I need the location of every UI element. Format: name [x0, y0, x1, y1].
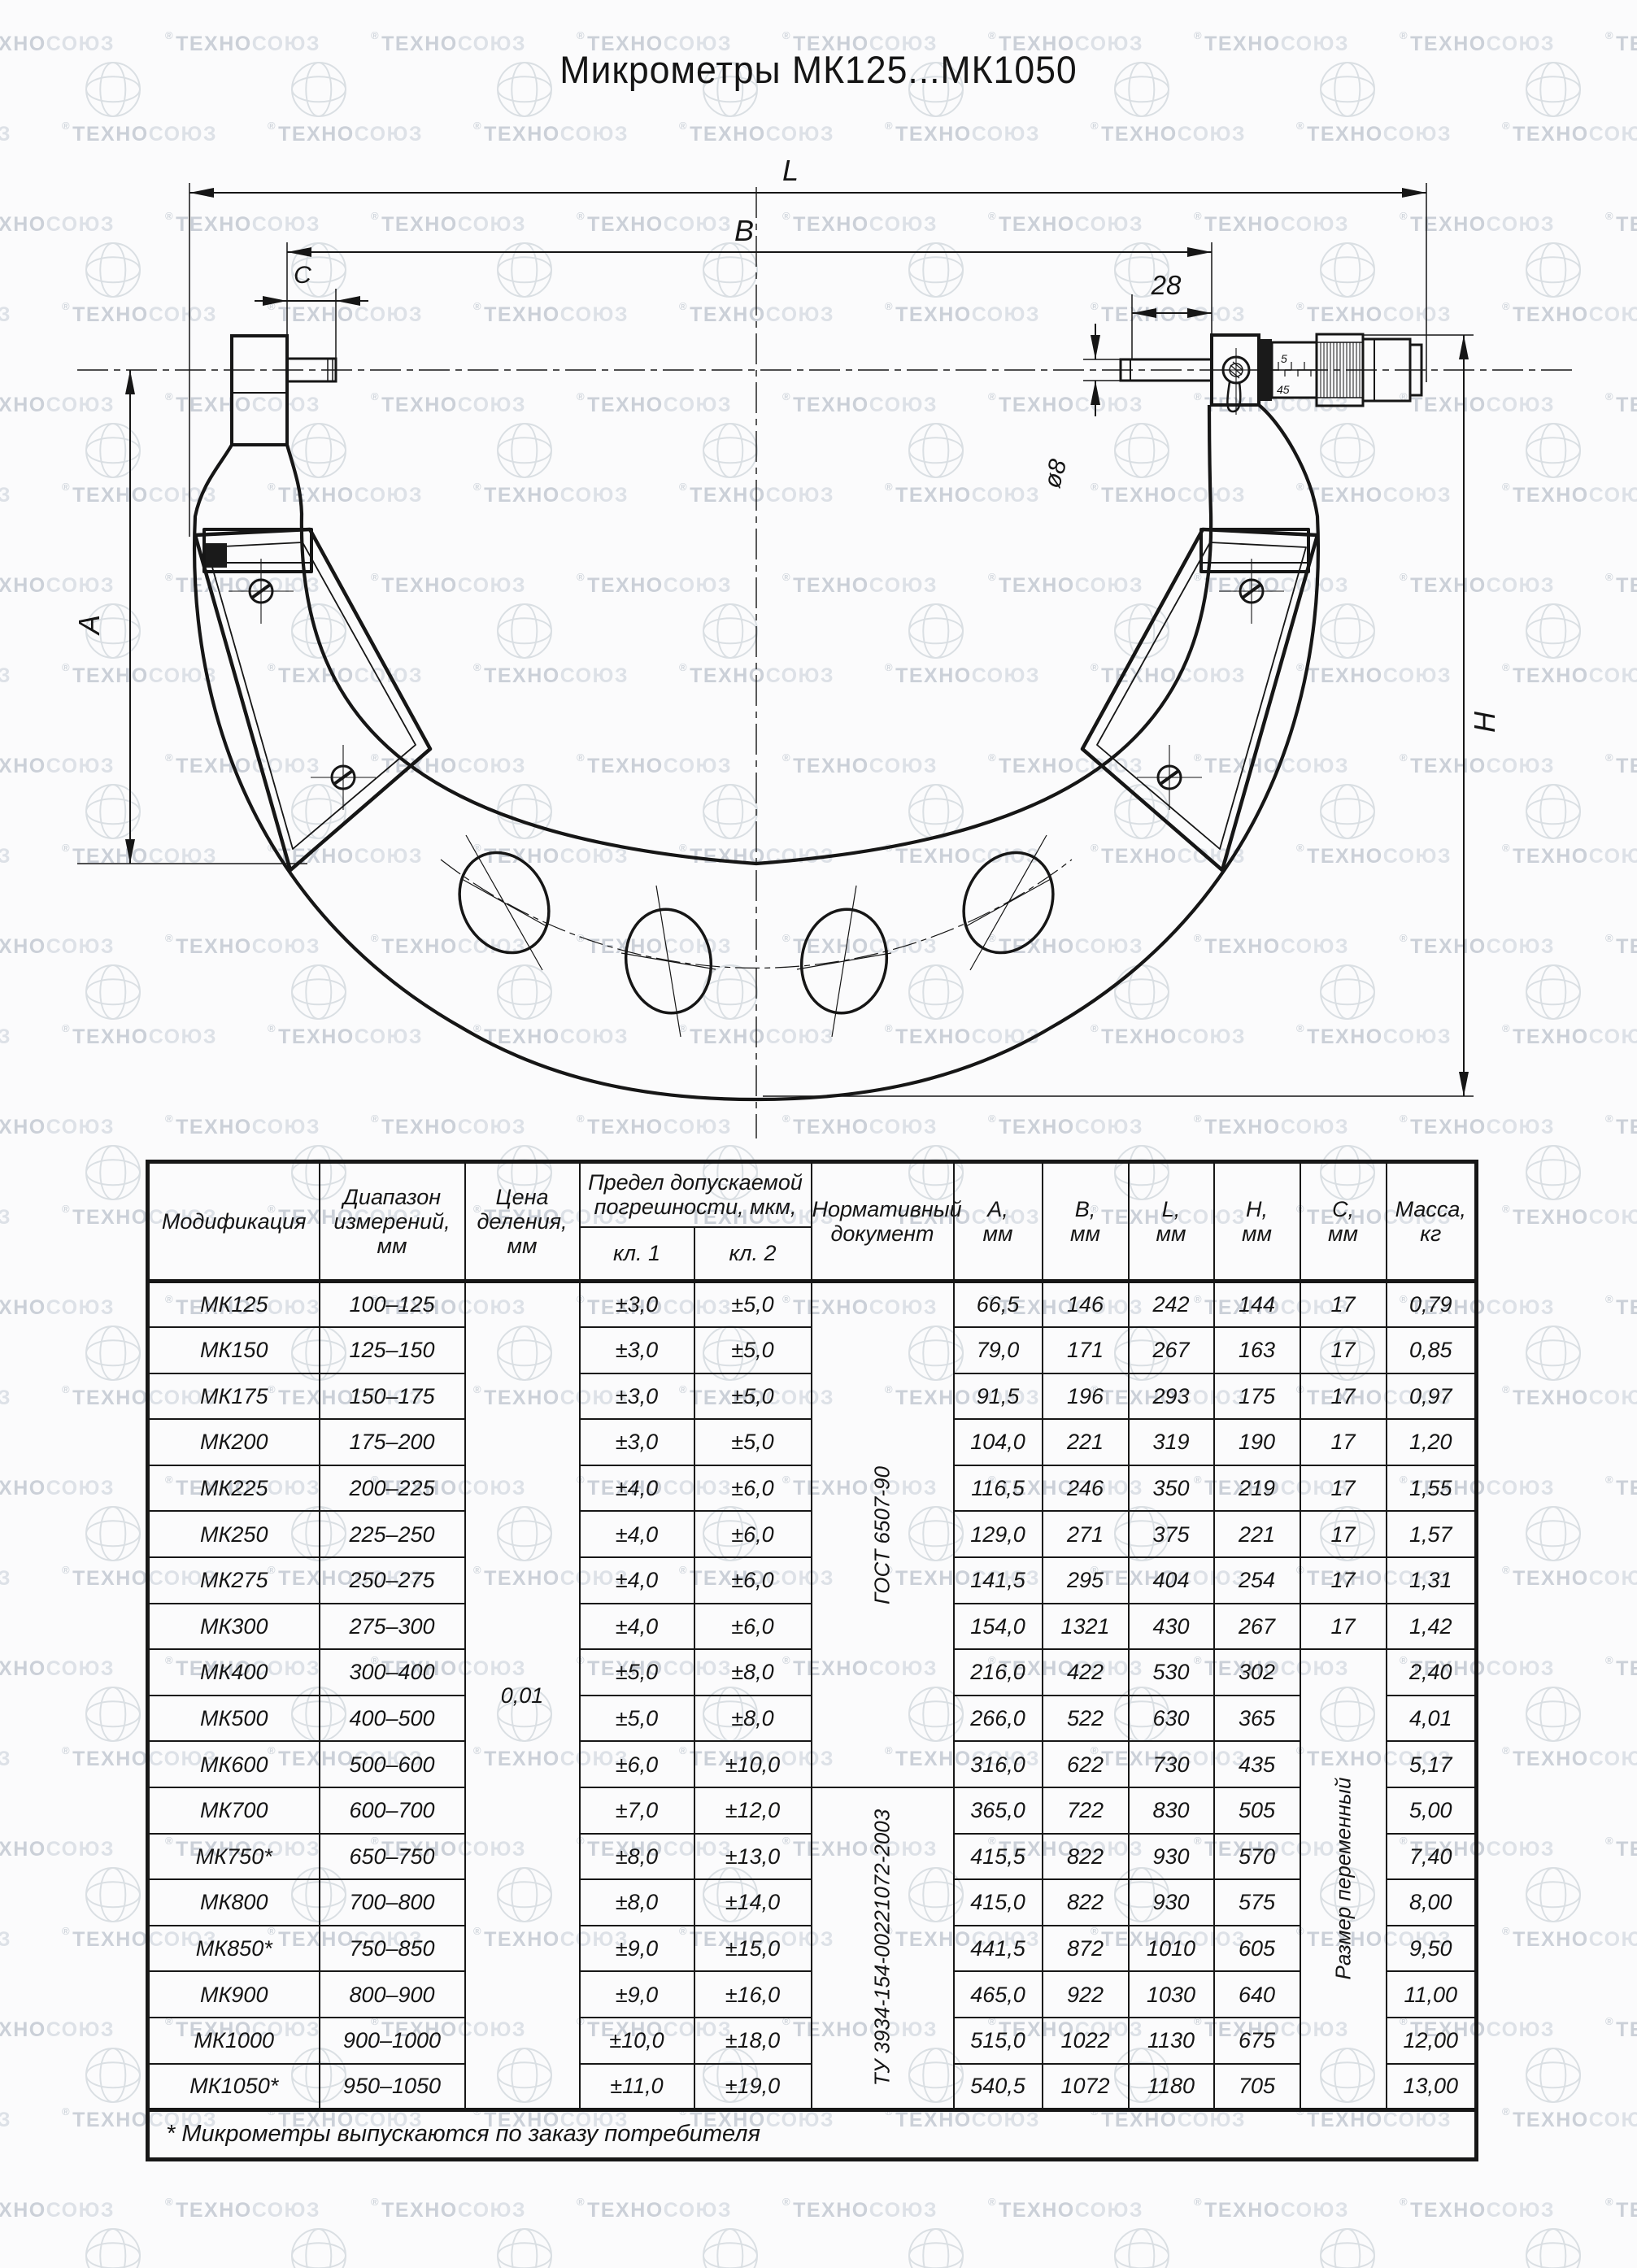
registered-mark: ® [1605, 2196, 1614, 2208]
cell-kl1: ±3,0 [580, 1282, 694, 1328]
cell-mass: 1,20 [1387, 1419, 1477, 1465]
cell-mass: 2,40 [1387, 1649, 1477, 1696]
brand-bold: ТЕХНО [0, 2199, 46, 2222]
cell-model: МК600 [148, 1741, 320, 1787]
drawing-sheet: ®ТЕХНОСОЮЗ®ТЕХНОСОЮЗ®ТЕХНОСОЮЗ®ТЕХНОСОЮЗ… [0, 0, 1637, 2268]
cell-l: 630 [1129, 1696, 1214, 1742]
cell-b: 622 [1043, 1741, 1129, 1787]
cell-l: 430 [1129, 1604, 1214, 1650]
registered-mark: ® [988, 2196, 997, 2208]
registered-mark: ® [782, 29, 791, 41]
center-lines [77, 187, 1574, 1138]
dim-label-C: C [294, 262, 311, 289]
cell-kl2: ±16,0 [694, 1971, 812, 2018]
watermark-tile: ®ТЕХНОСОЮЗ [1605, 1835, 1637, 1861]
registered-mark: ® [165, 2196, 174, 2208]
brand-light: СОЮЗ [0, 1386, 11, 1409]
cell-l: 930 [1129, 1834, 1214, 1880]
cell-h: 435 [1214, 1741, 1300, 1787]
cell-range: 275–300 [320, 1604, 465, 1650]
brand-bold: ТЕХНО [999, 2199, 1075, 2222]
registered-mark: ® [577, 2196, 586, 2208]
watermark-tile: ®ТЕХНОСОЮЗ [0, 2105, 11, 2132]
footnote-row: * Микрометры выпускаются по заказу потре… [148, 2109, 1477, 2159]
registered-mark: ® [1502, 1744, 1511, 1757]
cell-kl1: ±11,0 [580, 2064, 694, 2110]
brand-bold: ТЕХНО [1616, 1296, 1637, 1319]
cell-kl1: ±9,0 [580, 1926, 694, 1972]
vertical-text: ТУ 3934-154-00221072-2003 [870, 1809, 894, 2086]
cell-h: 675 [1214, 2018, 1300, 2064]
brand-bold: ТЕХНО [1616, 2199, 1637, 2222]
cell-l: 293 [1129, 1373, 1214, 1420]
watermark-tile: ®ТЕХНОСОЮЗ [1502, 1564, 1637, 1591]
cell-model: МК800 [148, 1879, 320, 1926]
cell-mass: 8,00 [1387, 1879, 1477, 1926]
cell-l: 1130 [1129, 2018, 1214, 2064]
cell-range: 800–900 [320, 1971, 465, 2018]
cell-b: 822 [1043, 1834, 1129, 1880]
brand-light: СОЮЗ [1589, 1386, 1637, 1409]
cell-range: 400–500 [320, 1696, 465, 1742]
globe-watermark-icon [497, 2228, 552, 2268]
registered-mark: ® [62, 1383, 71, 1395]
registered-mark: ® [371, 29, 380, 41]
brand-bold: ТЕХНО [0, 1657, 46, 1680]
cell-norm-doc-gost: ГОСТ 6507-90 [812, 1282, 954, 1788]
dimension-lines [77, 183, 1474, 1096]
registered-mark: ® [1605, 2015, 1614, 2027]
cell-kl2: ±5,0 [694, 1419, 812, 1465]
cell-kl1: ±8,0 [580, 1834, 694, 1880]
watermark-tile: ®ТЕХНОСОЮЗ [1502, 1383, 1637, 1410]
sleeve-mark-45: 45 [1277, 383, 1290, 396]
header-row: МодификацияДиапазонизмерений,ммЦенаделен… [148, 1162, 1477, 1227]
cell-kl1: ±7,0 [580, 1787, 694, 1834]
cell-kl1: ±9,0 [580, 1971, 694, 2018]
cell-b: 822 [1043, 1879, 1129, 1926]
cell-h: 254 [1214, 1557, 1300, 1604]
brand-light: СОЮЗ [869, 2199, 938, 2222]
cell-l: 375 [1129, 1511, 1214, 1557]
cell-mass: 7,40 [1387, 1834, 1477, 1880]
cell-kl1: ±3,0 [580, 1327, 694, 1373]
registered-mark: ® [1605, 1835, 1614, 1847]
cell-range: 175–200 [320, 1419, 465, 1465]
cell-kl2: ±5,0 [694, 1373, 812, 1420]
registered-mark: ® [1605, 1654, 1614, 1666]
cell-model: МК225 [148, 1465, 320, 1512]
col-header-modification: Модификация [148, 1162, 320, 1282]
brand-light: СОЮЗ [0, 1567, 11, 1590]
watermark-tile: ®ТЕХНОСОЮЗ [1605, 1654, 1637, 1681]
registered-mark: ® [782, 2196, 791, 2208]
cell-a: 91,5 [954, 1373, 1043, 1420]
brand-bold: ТЕХНО [0, 2018, 46, 2041]
brand-bold: ТЕХНО [1513, 1748, 1589, 1770]
cell-kl2: ±5,0 [694, 1282, 812, 1328]
cell-model: МК1000 [148, 2018, 320, 2064]
col-header-range: Диапазонизмерений,мм [320, 1162, 465, 1282]
cell-range: 250–275 [320, 1557, 465, 1604]
registered-mark: ® [1502, 1564, 1511, 1576]
cell-kl1: ±4,0 [580, 1557, 694, 1604]
registered-mark: ® [577, 29, 586, 41]
cell-l: 404 [1129, 1557, 1214, 1604]
cell-a: 415,0 [954, 1879, 1043, 1926]
brand-bold: ТЕХНО [587, 2199, 664, 2222]
brand-bold: ТЕХНО [72, 1928, 149, 1951]
cell-a: 216,0 [954, 1649, 1043, 1696]
cell-c: 17 [1300, 1511, 1387, 1557]
cell-b: 271 [1043, 1511, 1129, 1557]
watermark-tile: ®ТЕХНОСОЮЗ [1502, 1744, 1637, 1771]
registered-mark: ® [62, 1925, 71, 1937]
cell-b: 522 [1043, 1696, 1129, 1742]
cell-l: 930 [1129, 1879, 1214, 1926]
cell-h: 144 [1214, 1282, 1300, 1328]
cell-b: 1072 [1043, 2064, 1129, 2110]
brand-bold: ТЕХНО [0, 1477, 46, 1500]
footnote: * Микрометры выпускаются по заказу потре… [148, 2109, 1477, 2159]
watermark-tile: ®ТЕХНОСОЮЗ [988, 2196, 1143, 2222]
cell-model: МК275 [148, 1557, 320, 1604]
watermark-tile: ®ТЕХНОСОЮЗ [1502, 1925, 1637, 1952]
cell-l: 242 [1129, 1282, 1214, 1328]
cell-l: 1030 [1129, 1971, 1214, 2018]
watermark-tile: ®ТЕХНОСОЮЗ [0, 1925, 11, 1952]
cell-kl1: ±8,0 [580, 1879, 694, 1926]
cell-model: МК900 [148, 1971, 320, 2018]
brand-light: СОЮЗ [1487, 1657, 1555, 1680]
cell-model: МК125 [148, 1282, 320, 1328]
registered-mark: ® [371, 2196, 380, 2208]
cell-b: 1022 [1043, 2018, 1129, 2064]
cell-a: 141,5 [954, 1557, 1043, 1604]
dim-label-d8: ø8 [1038, 456, 1072, 491]
cell-c: 17 [1300, 1282, 1387, 1328]
watermark-tile: ®ТЕХНОСОЮЗ [0, 1835, 115, 1861]
brand-light: СОЮЗ [0, 2109, 11, 2131]
dim-label-L: L [782, 154, 799, 187]
cell-h: 175 [1214, 1373, 1300, 1420]
cell-range: 200–225 [320, 1465, 465, 1512]
watermark-tile: ®ТЕХНОСОЮЗ [1400, 2196, 1555, 2222]
col-header-l: L,мм [1129, 1162, 1214, 1282]
cell-h: 267 [1214, 1604, 1300, 1650]
globe-watermark-icon [85, 1867, 141, 1922]
cell-kl1: ±3,0 [580, 1419, 694, 1465]
cell-kl2: ±14,0 [694, 1879, 812, 1926]
cell-model: МК400 [148, 1649, 320, 1696]
spec-table: МодификацияДиапазонизмерений,ммЦенаделен… [146, 1160, 1478, 2161]
anvil-assembly [232, 336, 336, 445]
globe-watermark-icon [908, 2228, 964, 2268]
brand-bold: ТЕХНО [72, 2109, 149, 2131]
cell-a: 266,0 [954, 1696, 1043, 1742]
cell-norm-doc-tu: ТУ 3934-154-00221072-2003 [812, 1787, 954, 2109]
col-header-norm: Нормативныйдокумент [812, 1162, 954, 1282]
brand-light: СОЮЗ [1589, 2109, 1637, 2131]
watermark-tile: ®ТЕХНОСОЮЗ [165, 2196, 320, 2222]
cell-h: 570 [1214, 1834, 1300, 1880]
registered-mark: ® [1194, 2196, 1203, 2208]
registered-mark: ® [1605, 1474, 1614, 1486]
cell-model: МК200 [148, 1419, 320, 1465]
globe-watermark-icon [85, 2228, 141, 2268]
brand-light: СОЮЗ [1487, 2018, 1555, 2041]
globe-watermark-icon [1320, 2228, 1375, 2268]
registered-mark: ® [988, 29, 997, 41]
cell-division-merged: 0,01 [465, 1282, 580, 2110]
cell-range: 225–250 [320, 1511, 465, 1557]
cell-range: 500–600 [320, 1741, 465, 1787]
col-header-b: В,мм [1043, 1162, 1129, 1282]
cell-a: 79,0 [954, 1327, 1043, 1373]
watermark-tile: ®ТЕХНОСОЮЗ [577, 2196, 732, 2222]
cell-a: 441,5 [954, 1926, 1043, 1972]
watermark-tile: ®ТЕХНОСОЮЗ [1605, 2196, 1637, 2222]
cell-kl2: ±13,0 [694, 1834, 812, 1880]
brand-bold: ТЕХНО [1204, 2199, 1281, 2222]
watermark-tile: ®ТЕХНОСОЮЗ [0, 2196, 115, 2222]
brand-bold: ТЕХНО [381, 2199, 458, 2222]
registered-mark: ® [1502, 1203, 1511, 1215]
cell-a: 129,0 [954, 1511, 1043, 1557]
brand-bold: ТЕХНО [793, 2199, 869, 2222]
brand-light: СОЮЗ [46, 2018, 115, 2041]
brand-light: СОЮЗ [1589, 1748, 1637, 1770]
dim-label-28: 28 [1151, 270, 1182, 300]
brand-light: СОЮЗ [1487, 2199, 1555, 2222]
cell-l: 730 [1129, 1741, 1214, 1787]
globe-watermark-icon [703, 2228, 758, 2268]
cell-mass: 9,50 [1387, 1926, 1477, 1972]
cell-range: 700–800 [320, 1879, 465, 1926]
cell-a: 66,5 [954, 1282, 1043, 1328]
cell-mass: 12,00 [1387, 2018, 1477, 2064]
cell-b: 922 [1043, 1971, 1129, 2018]
brand-light: СОЮЗ [1589, 1206, 1637, 1229]
cell-a: 116,5 [954, 1465, 1043, 1512]
cell-range: 750–850 [320, 1926, 465, 1972]
cell-h: 640 [1214, 1971, 1300, 2018]
brand-light: СОЮЗ [1487, 1296, 1555, 1319]
brand-bold: ТЕХНО [1513, 1567, 1589, 1590]
watermark-tile: ®ТЕХНОСОЮЗ [0, 1744, 11, 1771]
cell-a: 365,0 [954, 1787, 1043, 1834]
cell-l: 830 [1129, 1787, 1214, 1834]
brand-light: СОЮЗ [0, 1748, 11, 1770]
cell-a: 316,0 [954, 1741, 1043, 1787]
watermark-tile: ®ТЕХНОСОЮЗ [0, 1203, 11, 1230]
brand-light: СОЮЗ [46, 1838, 115, 1861]
registered-mark: ® [62, 1744, 71, 1757]
col-header-h: Н,мм [1214, 1162, 1300, 1282]
cell-l: 530 [1129, 1649, 1214, 1696]
cell-kl1: ±3,0 [580, 1373, 694, 1420]
registered-mark: ® [1502, 1925, 1511, 1937]
page-title: Микрометры МК125...МК1050 [41, 47, 1596, 92]
cell-range: 900–1000 [320, 2018, 465, 2064]
globe-watermark-icon [291, 2228, 346, 2268]
watermark-tile: ®ТЕХНОСОЮЗ [1502, 1203, 1637, 1230]
brand-bold: ТЕХНО [176, 2199, 252, 2222]
watermark-tile: ®ТЕХНОСОЮЗ [1194, 2196, 1349, 2222]
dim-label-H: H [1468, 711, 1501, 733]
cell-model: МК750* [148, 1834, 320, 1880]
col-header-error: Предел допускаемойпогрешности, мкм, [580, 1162, 812, 1227]
watermark-tile: ®ТЕХНОСОЮЗ [0, 1383, 11, 1410]
cell-range: 600–700 [320, 1787, 465, 1834]
cell-model: МК150 [148, 1327, 320, 1373]
brand-bold: ТЕХНО [72, 1748, 149, 1770]
brand-light: СОЮЗ [1075, 2199, 1143, 2222]
brand-light: СОЮЗ [1589, 1928, 1637, 1951]
cell-model: МК300 [148, 1604, 320, 1650]
cell-b: 422 [1043, 1649, 1129, 1696]
cell-c: 17 [1300, 1604, 1387, 1650]
brand-light: СОЮЗ [46, 1296, 115, 1319]
cell-a: 540,5 [954, 2064, 1043, 2110]
micrometer-head: 5 45 [1121, 334, 1421, 415]
brand-light: СОЮЗ [1281, 2199, 1349, 2222]
cell-c: 17 [1300, 1327, 1387, 1373]
cell-model: МК500 [148, 1696, 320, 1742]
col-header-c: С,мм [1300, 1162, 1387, 1282]
cell-mass: 0,79 [1387, 1282, 1477, 1328]
cell-c-merged: Размер переменный [1300, 1649, 1387, 2109]
cell-model: МК1050* [148, 2064, 320, 2110]
globe-watermark-icon [1526, 1506, 1581, 1561]
cell-h: 505 [1214, 1787, 1300, 1834]
brand-light: СОЮЗ [0, 1206, 11, 1229]
brand-bold: ТЕХНО [0, 1838, 46, 1861]
cell-kl2: ±8,0 [694, 1696, 812, 1742]
cell-h: 190 [1214, 1419, 1300, 1465]
cell-a: 515,0 [954, 2018, 1043, 2064]
cell-kl2: ±15,0 [694, 1926, 812, 1972]
cell-kl2: ±6,0 [694, 1511, 812, 1557]
brand-bold: ТЕХНО [1513, 2109, 1589, 2131]
cell-model: МК700 [148, 1787, 320, 1834]
watermark-tile: ®ТЕХНОСОЮЗ [0, 1654, 115, 1681]
brand-bold: ТЕХНО [72, 1567, 149, 1590]
cell-l: 350 [1129, 1465, 1214, 1512]
cell-range: 100–125 [320, 1282, 465, 1328]
cell-kl1: ±4,0 [580, 1604, 694, 1650]
vertical-text: Размер переменный [1331, 1778, 1355, 1980]
cell-b: 295 [1043, 1557, 1129, 1604]
cell-a: 154,0 [954, 1604, 1043, 1650]
brand-bold: ТЕХНО [1616, 1657, 1637, 1680]
col-header-mass: Масса,кг [1387, 1162, 1477, 1282]
brand-bold: ТЕХНО [1513, 1206, 1589, 1229]
cell-b: 722 [1043, 1787, 1129, 1834]
brand-light: СОЮЗ [46, 1657, 115, 1680]
watermark-tile: ®ТЕХНОСОЮЗ [1605, 29, 1637, 56]
col-header-kl2: кл. 2 [694, 1227, 812, 1282]
registered-mark: ® [1194, 29, 1203, 41]
cell-mass: 1,57 [1387, 1511, 1477, 1557]
watermark-tile: ®ТЕХНОСОЮЗ [1605, 2015, 1637, 2042]
globe-watermark-icon [1526, 1326, 1581, 1381]
brand-light: СОЮЗ [1487, 1477, 1555, 1500]
globe-watermark-icon [85, 1506, 141, 1561]
cell-kl1: ±4,0 [580, 1511, 694, 1557]
cell-kl2: ±8,0 [694, 1649, 812, 1696]
cell-b: 221 [1043, 1419, 1129, 1465]
registered-mark: ® [1400, 2196, 1408, 2208]
cell-h: 705 [1214, 2064, 1300, 2110]
cell-b: 1321 [1043, 1604, 1129, 1650]
cell-kl2: ±12,0 [694, 1787, 812, 1834]
cell-kl2: ±6,0 [694, 1557, 812, 1604]
cell-range: 950–1050 [320, 2064, 465, 2110]
registered-mark: ® [165, 29, 174, 41]
cell-range: 650–750 [320, 1834, 465, 1880]
cell-b: 246 [1043, 1465, 1129, 1512]
watermark-tile: ®ТЕХНОСОЮЗ [0, 1474, 115, 1500]
col-header-division: Ценаделения,мм [465, 1162, 580, 1282]
table-row: МК125100–1250,01±3,0±5,0ГОСТ 6507-9066,5… [148, 1282, 1477, 1328]
cell-c: 17 [1300, 1373, 1387, 1420]
brand-light: СОЮЗ [664, 2199, 732, 2222]
brand-light: СОЮЗ [46, 1477, 115, 1500]
cell-kl2: ±6,0 [694, 1465, 812, 1512]
sleeve-mark-5: 5 [1281, 352, 1287, 365]
registered-mark: ® [62, 2105, 71, 2118]
cell-mass: 1,31 [1387, 1557, 1477, 1604]
cell-l: 1180 [1129, 2064, 1214, 2110]
cell-l: 1010 [1129, 1926, 1214, 1972]
cell-kl2: ±18,0 [694, 2018, 812, 2064]
cell-mass: 0,85 [1387, 1327, 1477, 1373]
spec-table-wrapper: МодификацияДиапазонизмерений,ммЦенаделен… [146, 1160, 1478, 2161]
brand-bold: ТЕХНО [72, 1386, 149, 1409]
watermark-tile: ®ТЕХНОСОЮЗ [1605, 1474, 1637, 1500]
cell-c: 17 [1300, 1465, 1387, 1512]
cell-kl1: ±10,0 [580, 2018, 694, 2064]
vertical-text: ГОСТ 6507-90 [870, 1466, 894, 1604]
cell-mass: 1,42 [1387, 1604, 1477, 1650]
brand-bold: ТЕХНО [1410, 2199, 1487, 2222]
cell-c: 17 [1300, 1557, 1387, 1604]
brand-bold: ТЕХНО [72, 1206, 149, 1229]
cell-l: 267 [1129, 1327, 1214, 1373]
cell-b: 872 [1043, 1926, 1129, 1972]
brand-bold: ТЕХНО [1616, 1838, 1637, 1861]
cell-mass: 0,97 [1387, 1373, 1477, 1420]
col-header-a: А,мм [954, 1162, 1043, 1282]
watermark-tile: ®ТЕХНОСОЮЗ [782, 2196, 938, 2222]
registered-mark: ® [1605, 29, 1614, 41]
cell-h: 365 [1214, 1696, 1300, 1742]
dim-label-B: B [734, 214, 754, 247]
cell-model: МК250 [148, 1511, 320, 1557]
brand-bold: ТЕХНО [1616, 1477, 1637, 1500]
brand-light: СОЮЗ [458, 2199, 526, 2222]
cell-model: МК175 [148, 1373, 320, 1420]
cell-range: 125–150 [320, 1327, 465, 1373]
cell-h: 302 [1214, 1649, 1300, 1696]
cell-h: 221 [1214, 1511, 1300, 1557]
globe-watermark-icon [1114, 2228, 1169, 2268]
micrometer-technical-drawing: 5 45 [0, 122, 1637, 1163]
brand-light: СОЮЗ [252, 2199, 320, 2222]
cell-model: МК850* [148, 1926, 320, 1972]
registered-mark: ® [1400, 29, 1408, 41]
